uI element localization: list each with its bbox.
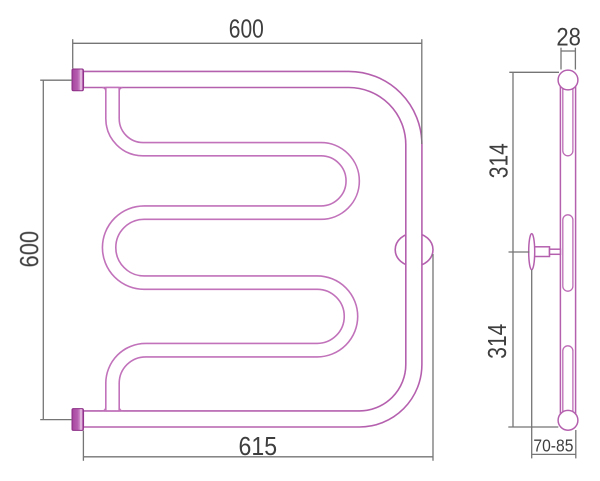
svg-text:615: 615 (239, 431, 278, 461)
svg-text:600: 600 (14, 231, 44, 267)
svg-text:314: 314 (484, 143, 514, 178)
svg-text:600: 600 (229, 14, 264, 44)
svg-text:70-85: 70-85 (533, 436, 573, 456)
svg-text:314: 314 (482, 324, 512, 359)
svg-text:28: 28 (556, 23, 581, 51)
